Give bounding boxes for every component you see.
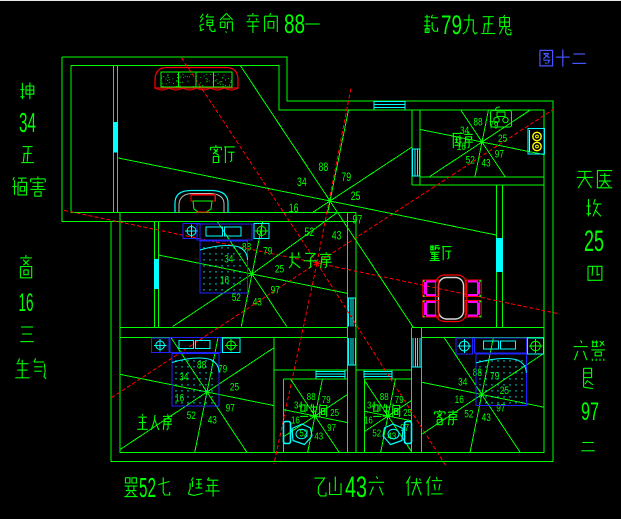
svg-text:88: 88 [284, 9, 305, 39]
svg-text:34: 34 [458, 377, 467, 389]
svg-text:88: 88 [473, 367, 482, 379]
svg-text:34: 34 [460, 125, 469, 137]
svg-text:16: 16 [291, 415, 300, 427]
svg-text:25: 25 [351, 191, 361, 203]
svg-text:52: 52 [464, 409, 473, 421]
svg-text:52: 52 [232, 292, 241, 304]
svg-text:43: 43 [481, 158, 490, 170]
svg-text:43: 43 [208, 414, 217, 426]
svg-text:79: 79 [341, 172, 351, 184]
svg-text:43: 43 [253, 296, 262, 308]
svg-text:43: 43 [332, 231, 342, 243]
svg-text:16: 16 [19, 289, 34, 317]
svg-text:34: 34 [19, 107, 36, 138]
svg-text:16: 16 [364, 415, 373, 427]
svg-text:88: 88 [380, 391, 389, 403]
svg-text:97: 97 [581, 398, 599, 426]
svg-text:79: 79 [263, 246, 272, 258]
svg-text:34: 34 [367, 400, 376, 412]
svg-text:25: 25 [584, 226, 604, 258]
svg-text:43: 43 [345, 472, 367, 504]
svg-text:25: 25 [275, 264, 284, 276]
svg-text:88: 88 [307, 391, 316, 403]
svg-text:34: 34 [224, 253, 233, 265]
svg-text:25: 25 [403, 407, 412, 419]
svg-text:34: 34 [294, 400, 303, 412]
svg-text:34: 34 [179, 371, 188, 383]
svg-text:52: 52 [139, 472, 156, 503]
svg-text:97: 97 [495, 149, 504, 161]
svg-text:97: 97 [496, 402, 505, 414]
svg-text:97: 97 [353, 215, 363, 227]
svg-text:88: 88 [473, 116, 482, 128]
svg-text:79: 79 [395, 394, 404, 406]
svg-text:43: 43 [314, 430, 323, 442]
svg-text:79: 79 [441, 10, 462, 40]
svg-text:16: 16 [455, 394, 464, 406]
svg-text:25: 25 [230, 382, 239, 394]
svg-text:52: 52 [372, 427, 381, 439]
svg-text:88: 88 [319, 162, 329, 174]
svg-text:34: 34 [297, 177, 307, 189]
svg-text:25: 25 [498, 133, 507, 145]
svg-text:16: 16 [289, 203, 299, 215]
svg-text:97: 97 [271, 285, 280, 297]
svg-text:97: 97 [327, 422, 336, 434]
svg-text:97: 97 [226, 403, 235, 415]
svg-text:25: 25 [330, 407, 339, 419]
svg-text:52: 52 [187, 410, 196, 422]
svg-text:43: 43 [482, 412, 491, 424]
svg-text:88: 88 [242, 242, 251, 254]
svg-text:88: 88 [197, 360, 206, 372]
svg-text:79: 79 [322, 394, 331, 406]
svg-text:52: 52 [466, 154, 475, 166]
